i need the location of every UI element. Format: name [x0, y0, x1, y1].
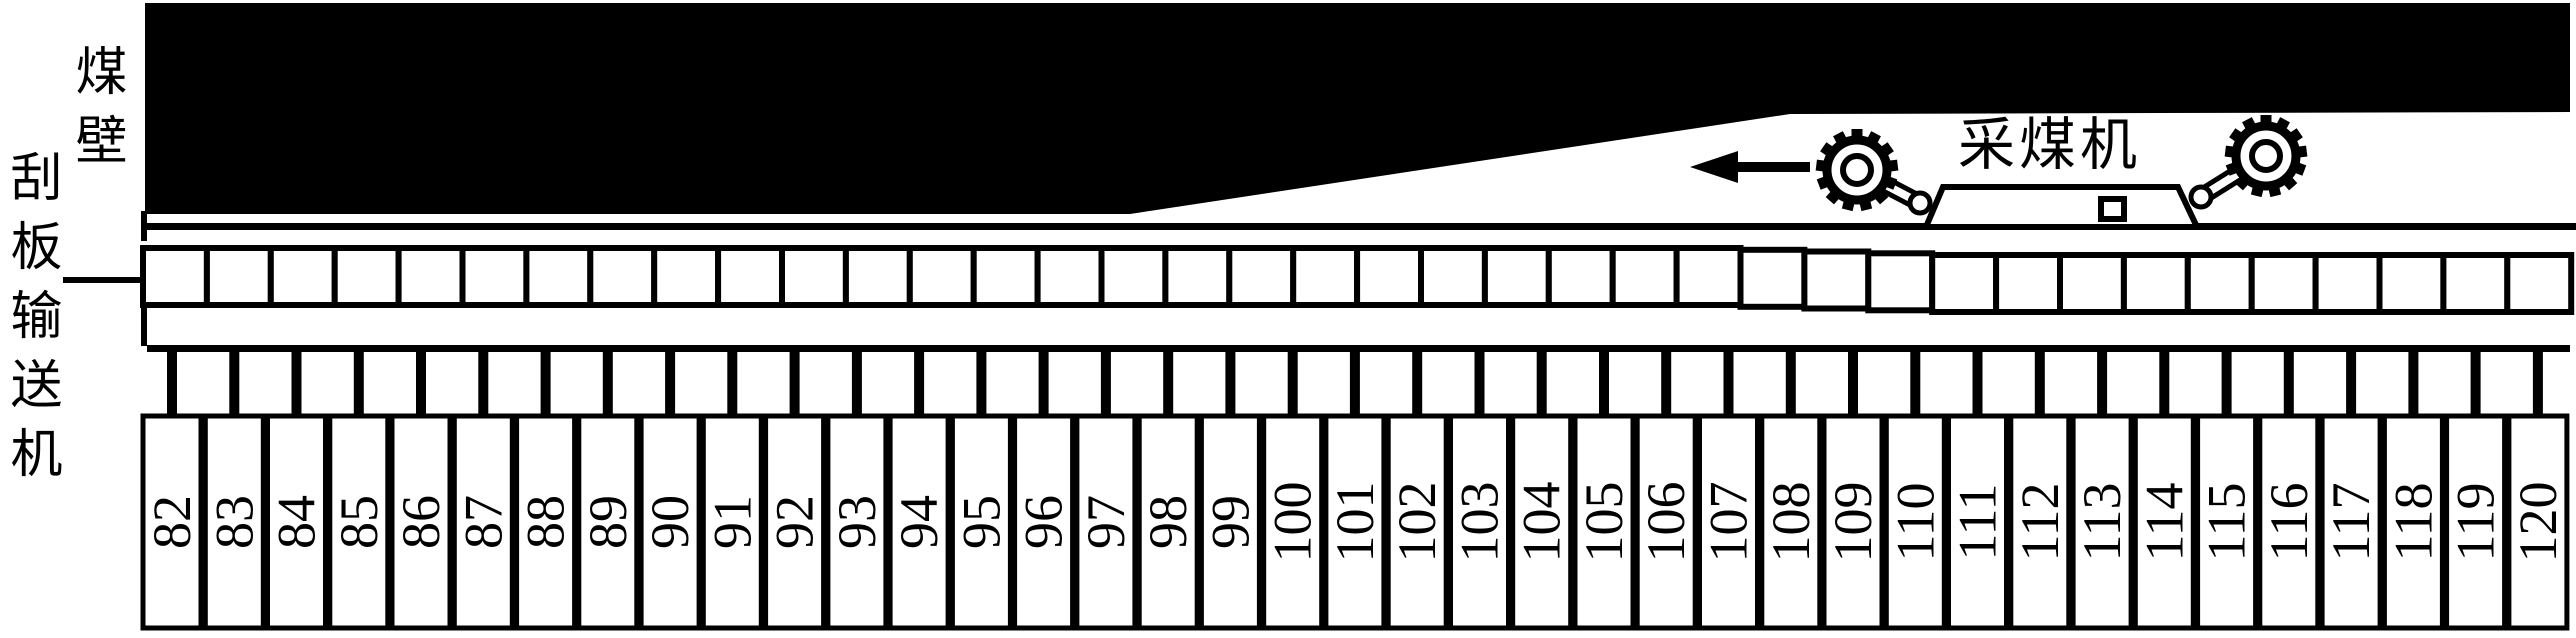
push-ram-tick	[167, 352, 177, 416]
push-ram-tick	[1412, 352, 1422, 416]
conveyor-pan-cell	[207, 248, 271, 305]
push-ram-tick	[416, 352, 426, 416]
conveyor-pan-cell	[718, 248, 782, 305]
drum-hub	[2252, 142, 2280, 170]
shearer-label: 采煤机	[1958, 117, 2141, 174]
conveyor-pan-cell	[2380, 255, 2444, 312]
conveyor-pan-cell	[782, 248, 846, 305]
support-number: 86	[391, 495, 451, 549]
support-number: 93	[827, 495, 887, 549]
support-number: 94	[889, 495, 949, 549]
push-ram-tick	[1350, 352, 1360, 416]
push-ram-tick	[1599, 352, 1609, 416]
conveyor-pan-cell	[1868, 253, 1932, 310]
conveyor-pan-cell	[399, 248, 463, 305]
support-number: 104	[1512, 482, 1572, 563]
support-number: 120	[2508, 482, 2568, 563]
support-number: 98	[1138, 495, 1198, 549]
support-number: 99	[1200, 495, 1260, 549]
right-cutting-drum	[2225, 115, 2308, 197]
support-number: 88	[516, 495, 576, 549]
arrow-shaft	[1736, 162, 1810, 172]
support-number: 111	[1948, 484, 2008, 561]
push-ram-tick	[1163, 352, 1173, 416]
push-ram-tick	[1786, 352, 1796, 416]
conveyor-pan-cell	[1613, 248, 1677, 305]
push-ram-tick	[2097, 352, 2107, 416]
conveyor-pan-cell	[1357, 248, 1421, 305]
push-ram-tick	[2035, 352, 2045, 416]
push-ram-tick	[292, 352, 302, 416]
support-number: 109	[1823, 482, 1883, 563]
push-ram-tick	[914, 352, 924, 416]
push-ram-tick	[1475, 352, 1485, 416]
conveyor-pan-cell	[463, 248, 527, 305]
support-number: 105	[1574, 482, 1634, 563]
conveyor-pan-cell	[846, 248, 910, 305]
conveyor-pan-cell	[271, 248, 335, 305]
right-arm-pivot	[2191, 187, 2211, 207]
push-ram-tick	[1910, 352, 1920, 416]
conveyor-pan-cell	[1804, 252, 1868, 309]
support-number: 91	[702, 495, 762, 549]
push-ram-tick	[1848, 352, 1858, 416]
conveyor-pan-cell	[910, 248, 974, 305]
support-number: 119	[2446, 483, 2506, 562]
support-number: 84	[267, 495, 327, 549]
conveyor-pan-cell	[1165, 248, 1229, 305]
diagram-canvas: 8283848586878889909192939495969798991001…	[0, 0, 2576, 638]
coal-seam-block	[145, 3, 2570, 214]
support-number: 97	[1076, 495, 1136, 549]
conveyor-pan-cell	[1741, 250, 1805, 307]
floor-line	[143, 223, 2576, 230]
support-number: 110	[1885, 483, 1945, 562]
push-ram-tick	[229, 352, 239, 416]
support-number: 114	[2134, 483, 2194, 562]
support-number: 112	[2010, 483, 2070, 562]
support-number: 116	[2259, 483, 2319, 562]
push-ram-tick	[1101, 352, 1111, 416]
push-ram-tick	[1225, 352, 1235, 416]
push-ram-tick	[1661, 352, 1671, 416]
push-ram-tick	[603, 352, 613, 416]
push-ram-tick	[2346, 352, 2356, 416]
conveyor-pan-cell	[1677, 248, 1741, 305]
push-ram-tick	[2159, 352, 2169, 416]
conveyor-pan-cell	[1485, 248, 1549, 305]
support-number: 106	[1636, 482, 1696, 563]
support-number: 87	[453, 495, 513, 549]
drum-hub	[1843, 156, 1871, 184]
conveyor-pan-cell	[654, 248, 718, 305]
conveyor-pan-cell	[1102, 248, 1166, 305]
conveyor-pan-cell	[1996, 255, 2060, 312]
support-number: 101	[1325, 482, 1385, 563]
push-ram-tick	[976, 352, 986, 416]
longwall-face-diagram: 8283848586878889909192939495969798991001…	[0, 0, 2576, 638]
push-ram-tick	[1039, 352, 1049, 416]
support-number: 92	[765, 495, 825, 549]
push-ram-tick	[1537, 352, 1547, 416]
push-ram-tick	[478, 352, 488, 416]
conveyor-pan-cell	[2252, 255, 2316, 312]
support-number: 82	[142, 495, 202, 549]
push-ram-tick	[790, 352, 800, 416]
push-ram-tick	[665, 352, 675, 416]
support-number: 103	[1450, 482, 1510, 563]
support-number: 118	[2383, 483, 2443, 562]
support-number: 90	[640, 495, 700, 549]
conveyor-pan-cell	[1549, 248, 1613, 305]
conveyor-pan-cell	[1421, 248, 1485, 305]
left-cutting-drum	[1816, 129, 1899, 211]
support-number: 85	[329, 495, 389, 549]
scraper-conveyor-label: 刮板输送机	[4, 150, 56, 495]
conveyor-pan-cell	[335, 248, 399, 305]
conveyor-pan-cell	[974, 248, 1038, 305]
support-number: 83	[204, 495, 264, 549]
push-ram-tick	[541, 352, 551, 416]
push-ram-tick	[1288, 352, 1298, 416]
support-number: 89	[578, 495, 638, 549]
push-ram-tick	[1724, 352, 1734, 416]
push-ram-tick	[852, 352, 862, 416]
push-ram-tick	[2284, 352, 2294, 416]
arrow-head	[1690, 151, 1738, 183]
support-number: 95	[951, 495, 1011, 549]
conveyor-pan-cell	[2443, 255, 2507, 312]
push-ram-tick	[2533, 352, 2543, 416]
support-number: 113	[2072, 483, 2132, 562]
push-ram-tick	[2408, 352, 2418, 416]
support-number: 96	[1014, 495, 1074, 549]
shearer-body-hatch	[2101, 199, 2124, 219]
support-number: 117	[2321, 483, 2381, 562]
push-ram-tick	[354, 352, 364, 416]
conveyor-pan-cell	[2060, 255, 2124, 312]
push-ram-tick	[2471, 352, 2481, 416]
conveyor-rear-bar	[147, 345, 2570, 352]
conveyor-pan-cell	[2188, 255, 2252, 312]
support-number: 115	[2197, 483, 2257, 562]
conveyor-leader-line	[63, 277, 147, 283]
support-number: 100	[1263, 482, 1323, 563]
conveyor-pan-cell	[526, 248, 590, 305]
support-number: 107	[1699, 482, 1759, 563]
push-ram-tick	[727, 352, 737, 416]
conveyor-pan-cell	[1229, 248, 1293, 305]
coal-wall-label: 煤壁	[69, 44, 121, 182]
conveyor-pan-cell	[2124, 255, 2188, 312]
shearer-body	[1926, 187, 2197, 227]
conveyor-pan-cell	[2507, 255, 2571, 312]
left-endcap-upper	[141, 211, 147, 241]
support-number: 108	[1761, 482, 1821, 563]
conveyor-pan-cell	[143, 248, 207, 305]
support-number: 102	[1387, 482, 1447, 563]
push-ram-tick	[1973, 352, 1983, 416]
conveyor-pan-cell	[590, 248, 654, 305]
left-arm-pivot	[1910, 193, 1930, 213]
direction-arrow-icon	[1690, 151, 1810, 183]
conveyor-pan-cell	[1932, 255, 1996, 312]
conveyor-pan-cell	[2316, 255, 2380, 312]
conveyor-pan-cell	[1038, 248, 1102, 305]
conveyor-pan-cell	[1293, 248, 1357, 305]
push-ram-tick	[2222, 352, 2232, 416]
